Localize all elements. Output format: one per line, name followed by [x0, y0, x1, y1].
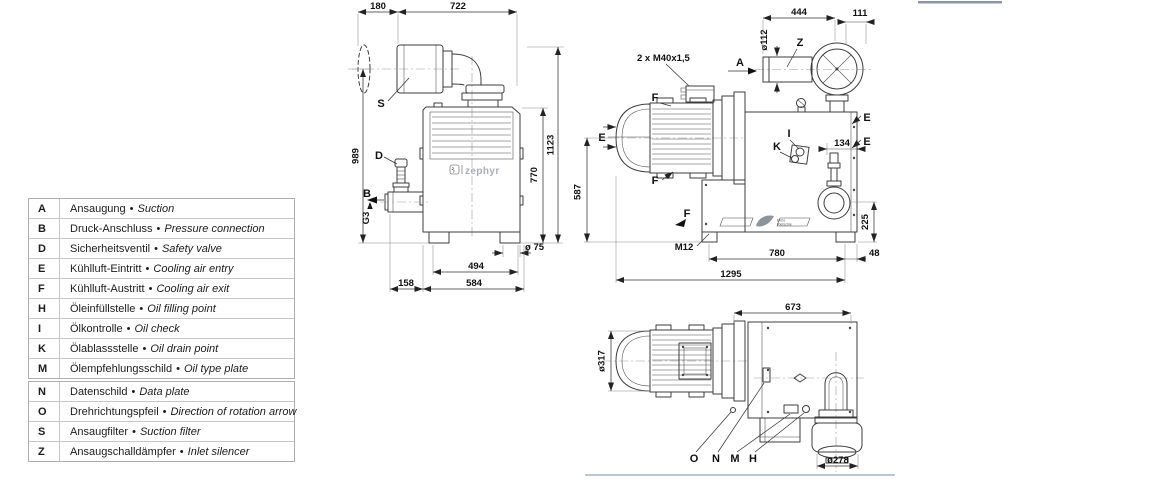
label-H: H — [749, 453, 757, 465]
dim-722: 722 — [450, 1, 466, 12]
technical-drawing-page: AAnsaugung•Suction BDruck-Anschluss•Pres… — [0, 0, 1160, 480]
motor-side — [616, 86, 745, 184]
label-M: M — [730, 453, 739, 465]
label-F-top: F — [652, 92, 659, 104]
dim-225: 225 — [860, 213, 871, 230]
dim-278: ø278 — [827, 455, 849, 466]
dim-317: ø317 — [597, 350, 608, 372]
dimensions-side: 2 x M40x1,5 A Z ø112 444 — [573, 7, 880, 283]
dim-494: 494 — [468, 261, 485, 272]
dimensions-front: 180 722 1123 770 989 G3 — [351, 1, 565, 292]
label-E-right2: E — [863, 136, 870, 148]
dim-M40: 2 x M40x1,5 — [637, 53, 691, 64]
dim-780: 780 — [769, 248, 785, 259]
oil-sight-glass — [818, 153, 850, 219]
dim-112: ø112 — [759, 29, 770, 50]
page-edge-line-bottom — [585, 474, 895, 476]
rotation-arrow-mark — [731, 408, 736, 413]
inlet-silencer — [763, 43, 863, 112]
label-B: B — [363, 188, 371, 200]
label-I: I — [787, 128, 790, 140]
dim-770: 770 — [529, 167, 540, 183]
dim-111: 111 — [853, 8, 869, 19]
label-E-right1: E — [863, 112, 870, 124]
oil-fill-port — [803, 406, 810, 413]
dim-1295: 1295 — [720, 269, 742, 280]
side-view: Elmo Rietschle — [573, 7, 880, 283]
brand-text: zephyr — [465, 166, 500, 177]
dim-587: 587 — [573, 184, 584, 200]
pump-body-side: Elmo Rietschle — [702, 99, 857, 243]
dimensions-top: 673 ø317 O N M H ø278 — [597, 302, 859, 469]
dim-444: 444 — [791, 7, 808, 18]
dim-75: ø 75 — [525, 242, 545, 253]
pump-body-front: zephyr — [420, 103, 523, 243]
oil-check-drain-ports — [790, 145, 809, 164]
front-view: zephyr — [348, 1, 564, 292]
pump-body-top — [731, 322, 858, 442]
label-D: D — [375, 150, 383, 162]
dim-989: 989 — [351, 148, 362, 164]
label-A: A — [736, 57, 744, 69]
zephyr-logo: zephyr — [450, 165, 500, 177]
dim-673: 673 — [785, 302, 801, 313]
label-O: O — [690, 453, 699, 465]
dim-G3: G3 — [361, 212, 372, 225]
oil-type-plate — [784, 405, 798, 413]
label-S: S — [377, 98, 384, 110]
dim-48: 48 — [869, 248, 880, 259]
page-edge-line-top — [918, 1, 1002, 4]
label-F-low: F — [684, 208, 691, 220]
dim-180: 180 — [370, 1, 386, 12]
elmo-rietschle-logo: Elmo Rietschle — [756, 215, 792, 226]
label-K: K — [773, 141, 781, 153]
dim-158: 158 — [398, 278, 414, 289]
drawing-svg: zephyr — [0, 0, 1160, 480]
dim-584: 584 — [466, 278, 483, 289]
dim-134: 134 — [834, 138, 851, 149]
dim-1123: 1123 — [546, 135, 557, 156]
label-Z: Z — [797, 37, 804, 49]
dim-M12: M12 — [675, 242, 693, 253]
label-F-mid: F — [652, 175, 659, 187]
breather-cap — [797, 99, 806, 108]
pressure-connection — [380, 192, 428, 212]
label-N: N — [712, 453, 720, 465]
brand-line2: Rietschle — [777, 223, 792, 227]
top-view: 673 ø317 O N M H ø278 — [597, 302, 865, 472]
safety-valve — [393, 159, 409, 192]
